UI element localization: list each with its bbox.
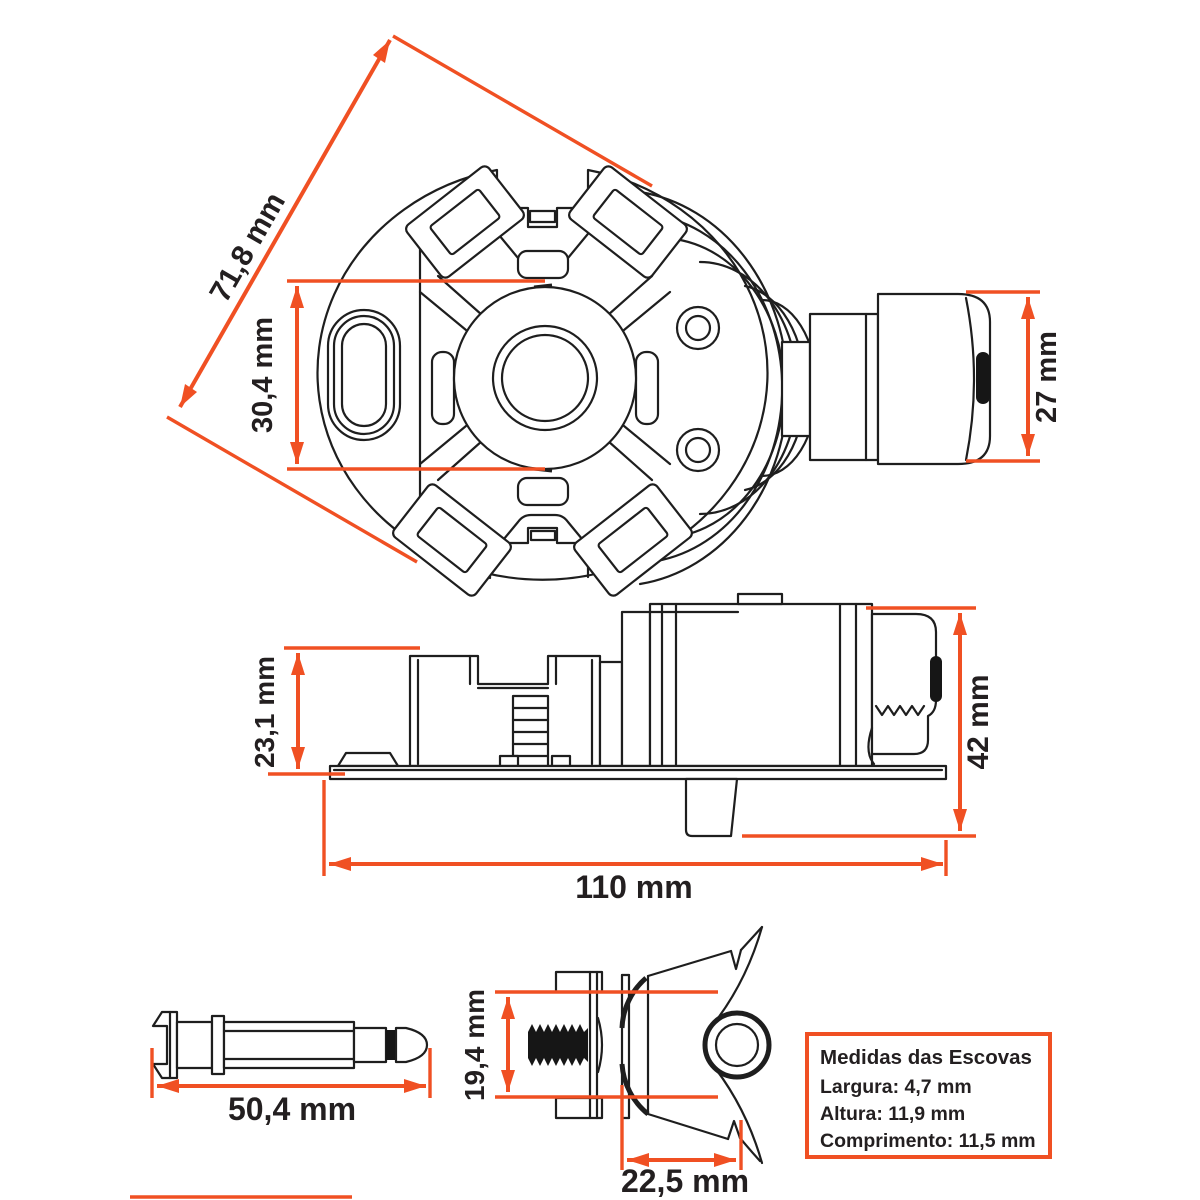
spring-arc [622,1064,648,1114]
arrowhead [501,1070,515,1092]
pin-neck [177,1022,212,1068]
pin-nose [396,1028,427,1062]
dimension-label: 50,4 mm [228,1091,356,1127]
side-view-drawing [330,594,946,836]
left-bump [338,753,398,766]
arrowhead [1021,434,1035,456]
bearing-neck [782,342,810,436]
dimension-label: 19,4 mm [459,989,490,1101]
top-view-drawing [318,164,990,598]
dimension-label: 42 mm [962,674,995,769]
arrowhead [180,384,197,407]
brush-measurements-box: Medidas das Escovas Largura: 4,7 mm Altu… [807,1034,1050,1157]
pin-head [153,1012,177,1078]
break-line [728,1121,740,1139]
technical-drawing-canvas: 71,8 mm 30,4 mm 27 mm 23,1 mm 42 mm [0,0,1200,1200]
arrowhead [291,747,305,769]
top-tab-detail [530,211,555,222]
brush-screw-thread [528,1024,588,1066]
end-cap [872,614,936,754]
extension-line [393,36,652,186]
funnel-edge [648,951,731,976]
dimension-label: 23,1 mm [249,656,280,768]
bearing-mid [810,314,878,460]
dimension-label: 110 mm [575,869,692,905]
break-line [731,950,741,969]
info-box-line: Largura: 4,7 mm [820,1076,972,1098]
arrowhead [953,809,967,831]
funnel-edge [648,1114,728,1139]
commutator-ring-inner [716,1024,758,1066]
diagram-page: 71,8 mm 30,4 mm 27 mm 23,1 mm 42 mm [0,0,1200,1200]
arrowhead [290,442,304,464]
dome-hole [677,429,719,471]
mounting-foot [686,779,737,836]
info-box-line: Altura: 11,9 mm [820,1103,965,1125]
side-lug-right [636,352,658,424]
boss-tick-top [534,285,552,287]
dimension-label: 30,4 mm [247,317,279,433]
spring-arc [622,978,646,1028]
bracket-bottom [556,1098,602,1118]
arrowhead [290,286,304,308]
body-step [738,594,782,604]
bracket-top [556,972,602,992]
cap-seal-sliver [930,656,942,702]
arrowhead [329,857,351,871]
arrowhead [921,857,943,871]
main-body [650,604,872,766]
lower-v-tab [518,478,568,505]
upper-v-tab [518,251,568,278]
dimension-label: 27 mm [1031,331,1063,423]
pin-band [386,1030,396,1060]
arrowhead [501,997,515,1019]
info-box-title: Medidas das Escovas [820,1046,1032,1069]
dimension-side-height: 23,1 mm [249,648,420,774]
dimension-brush-height: 19,4 mm [459,989,718,1101]
commutator-ring-outer [705,1013,769,1077]
base-plate [330,766,946,779]
side-lug-left [432,352,454,424]
arrowhead [373,40,390,63]
mid-block [600,662,622,766]
brush-front-arc [598,1018,602,1072]
arrowhead [404,1079,426,1093]
dimension-brush-width: 22,5 mm [621,1085,749,1199]
bearing-seal-sliver [976,352,990,404]
info-box-line: Comprimento: 11,5 mm [820,1130,1036,1152]
arrowhead [157,1079,179,1093]
dome-hole [677,307,719,349]
brush-detail-drawing [528,927,769,1163]
dimension-side-length: 110 mm [324,780,946,905]
arrowhead [291,653,305,675]
center-bore-outer [493,326,597,430]
arrowhead [1021,297,1035,319]
pin-washer [212,1016,224,1074]
pin-step [354,1028,386,1062]
ladder-foot [552,756,570,766]
pin-shaft [224,1022,354,1068]
mid-block [622,612,650,766]
ladder-foot [500,756,518,766]
left-housing [410,656,600,766]
pin-drawing [153,1012,427,1078]
dimension-label: 22,5 mm [621,1163,749,1199]
arrowhead [953,613,967,635]
